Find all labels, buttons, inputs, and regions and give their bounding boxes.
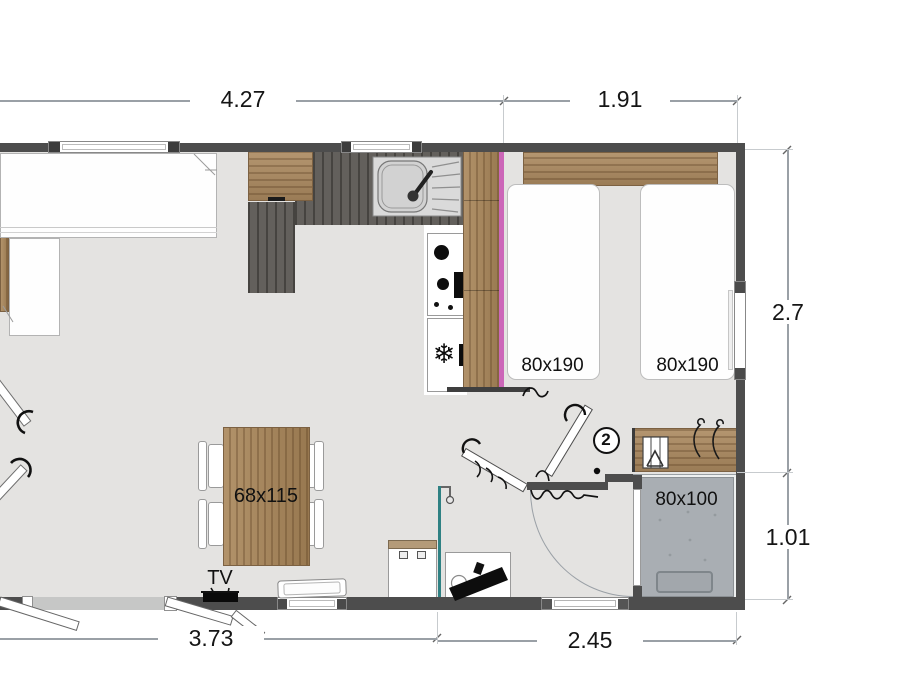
dim-label-bottom-left: 3.73 xyxy=(158,626,264,650)
extension-line xyxy=(437,612,438,644)
extension-line xyxy=(503,95,504,143)
extension-line xyxy=(745,599,793,600)
partition-fixture-icon xyxy=(441,487,454,504)
bed-right-size-label: 80x190 xyxy=(640,355,735,377)
dim-label-right-upper: 2.7 xyxy=(759,300,817,324)
shower-texture-dots xyxy=(659,511,717,562)
bed-left-size-label: 80x190 xyxy=(505,355,600,377)
room-number-badge: 2 xyxy=(593,427,620,454)
dim-label-right-lower: 1.01 xyxy=(757,525,819,549)
bench-contents xyxy=(449,562,508,601)
folded-chair-left-1 xyxy=(0,364,33,433)
room-number: 2 xyxy=(595,430,617,450)
dim-label-bottom-right: 2.45 xyxy=(537,628,643,652)
clothes-hanger-icon xyxy=(694,419,704,457)
shower-size-label: 80x100 xyxy=(639,489,734,511)
interior-door-leaf-a xyxy=(462,439,528,491)
wardrobe-rack-icon xyxy=(643,437,668,468)
entry-bench xyxy=(278,579,347,598)
folded-chair-left-2 xyxy=(0,459,31,515)
dim-label-top-right: 1.91 xyxy=(570,87,670,111)
dim-label-top-left: 4.27 xyxy=(190,87,296,111)
tv-label: TV xyxy=(201,567,239,593)
extension-line xyxy=(736,612,737,645)
curtain-squiggle xyxy=(531,490,598,499)
door-handle-dot xyxy=(594,468,600,474)
floor-plan: ❄ xyxy=(0,0,900,675)
extension-line xyxy=(745,149,793,150)
curtain-squiggle xyxy=(523,388,548,397)
interior-door-leaf-b xyxy=(536,405,592,481)
kitchen-sink xyxy=(373,157,461,216)
clothes-hanger-icon xyxy=(713,420,723,459)
extension-line xyxy=(737,472,793,473)
dimension-ticks xyxy=(433,97,791,644)
chaise-bevel-mark xyxy=(3,306,13,322)
extension-line xyxy=(737,95,738,143)
table-size-label: 68x115 xyxy=(222,485,310,508)
sofa-bevel-mark xyxy=(194,154,217,175)
